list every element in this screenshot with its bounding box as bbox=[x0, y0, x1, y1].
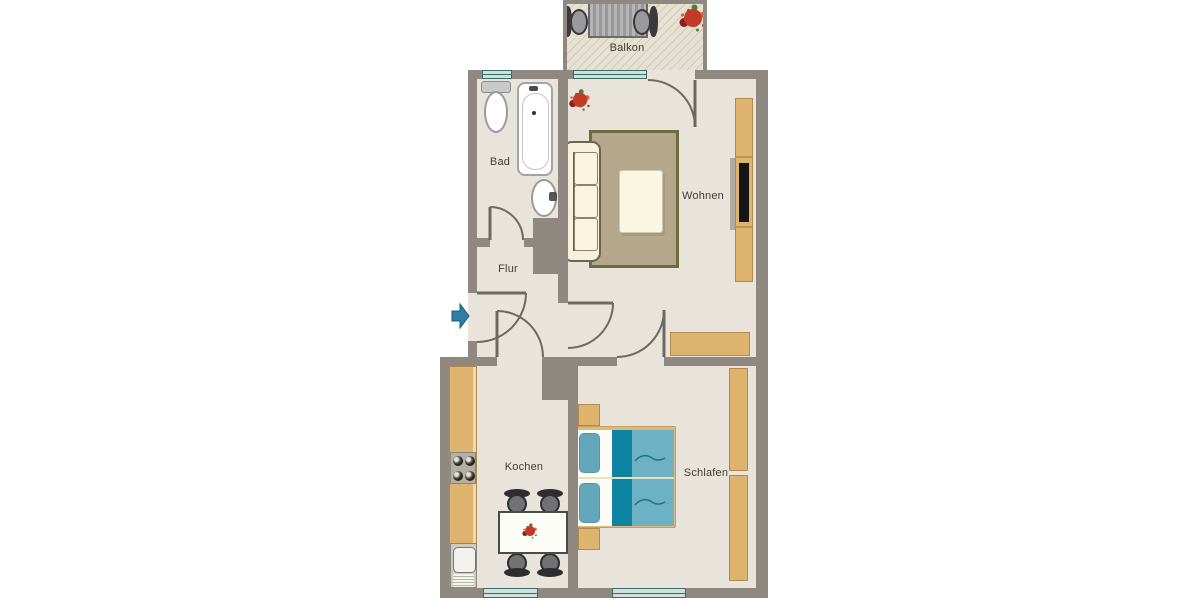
balcony-wall-right bbox=[703, 0, 707, 70]
bathtub-drain-icon bbox=[532, 111, 536, 115]
wall-bath-bottom-left bbox=[477, 238, 490, 247]
stove-burner-icon bbox=[453, 471, 463, 481]
patio-chair-right-icon bbox=[633, 9, 651, 35]
sofa-cushion bbox=[574, 185, 598, 218]
balcony-wall-left bbox=[563, 0, 567, 70]
wall-bath-living bbox=[558, 79, 568, 303]
stove-icon bbox=[450, 452, 476, 484]
wall-left-upper bbox=[468, 70, 477, 293]
sofa-cushion bbox=[574, 218, 598, 251]
dining-chair-icon bbox=[504, 552, 530, 577]
double-bed bbox=[574, 426, 676, 528]
table-flowers-icon bbox=[525, 526, 535, 536]
chair-back bbox=[504, 568, 530, 577]
room-label-wohnen: Wohnen bbox=[663, 190, 743, 202]
sink-drainboard bbox=[453, 574, 474, 587]
sofa bbox=[563, 141, 601, 262]
living-plant-icon bbox=[573, 93, 587, 107]
wall-living-bottom-left bbox=[578, 357, 617, 366]
entrance-arrow-right-icon bbox=[452, 304, 469, 328]
room-label-balkon: Balkon bbox=[587, 42, 667, 54]
nightstand-bottom bbox=[578, 528, 600, 550]
wall-kitchen-left bbox=[440, 357, 449, 598]
stove-burner-icon bbox=[465, 471, 475, 481]
balcony-window-icon bbox=[573, 70, 647, 79]
sideboard-divider bbox=[736, 226, 752, 228]
lowboard bbox=[670, 332, 750, 356]
stove-burner-icon bbox=[465, 456, 475, 466]
sofa-cushion bbox=[574, 152, 598, 185]
wall-kitchen-bedroom bbox=[568, 357, 578, 588]
dining-chair-icon bbox=[537, 552, 563, 577]
floor-plan: Balkon Bad Flur Wohnen Kochen Schlafen bbox=[0, 0, 1200, 600]
bed-pillow-icon bbox=[579, 483, 600, 523]
wall-living-bottom-right bbox=[664, 357, 768, 366]
balcony-wall-top bbox=[563, 0, 707, 4]
wardrobe-upper bbox=[729, 368, 748, 471]
balcony-plant-icon bbox=[684, 9, 702, 27]
kitchen-window-icon bbox=[483, 588, 538, 598]
entrance-threshold bbox=[468, 293, 477, 341]
bed-pillow-icon bbox=[579, 433, 600, 473]
room-label-schlafen: Schlafen bbox=[666, 467, 746, 479]
bedroom-window-icon bbox=[612, 588, 686, 598]
room-label-kochen: Kochen bbox=[484, 461, 564, 473]
sink-basin bbox=[453, 547, 476, 573]
coffee-table bbox=[619, 170, 663, 233]
sideboard-divider bbox=[736, 156, 752, 158]
washbasin-faucet-icon bbox=[549, 192, 557, 201]
bathtub-faucet-icon bbox=[529, 86, 538, 91]
bed-split-line bbox=[578, 477, 674, 479]
kitchen-sink-icon bbox=[450, 543, 477, 588]
room-label-bad: Bad bbox=[460, 156, 540, 168]
stove-burner-icon bbox=[453, 456, 463, 466]
patio-chair-left-icon bbox=[570, 9, 588, 35]
wardrobe-lower bbox=[729, 475, 748, 581]
bath-window-icon bbox=[482, 70, 512, 79]
chair-back bbox=[537, 568, 563, 577]
balcony-threshold bbox=[647, 70, 695, 79]
nightstand-top bbox=[578, 404, 600, 426]
toilet-icon bbox=[484, 91, 508, 133]
room-label-flur: Flur bbox=[468, 263, 548, 275]
wall-right-outer bbox=[756, 70, 768, 598]
